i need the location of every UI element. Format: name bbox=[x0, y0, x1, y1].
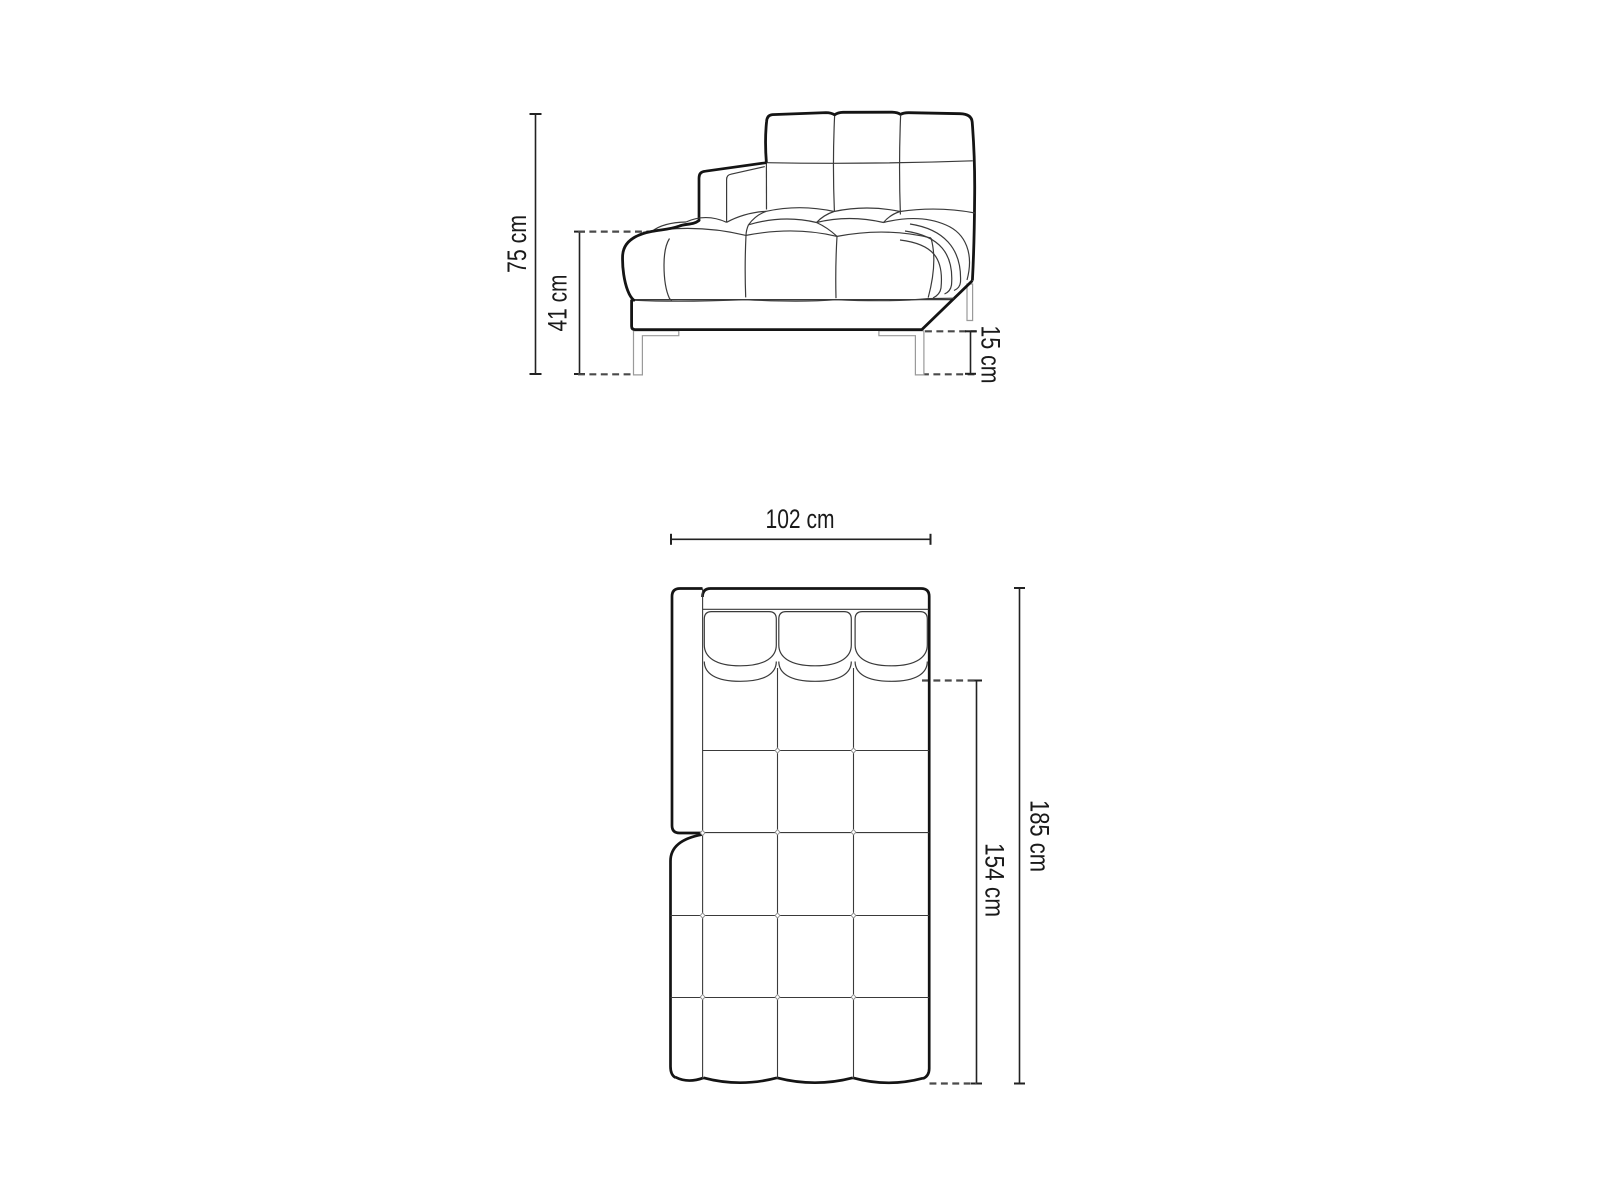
svg-text:102 cm: 102 cm bbox=[766, 504, 835, 534]
svg-text:15 cm: 15 cm bbox=[976, 326, 1006, 384]
svg-text:41 cm: 41 cm bbox=[543, 275, 573, 332]
svg-text:154 cm: 154 cm bbox=[980, 843, 1010, 917]
svg-text:75 cm: 75 cm bbox=[502, 215, 532, 273]
svg-text:185 cm: 185 cm bbox=[1025, 800, 1055, 872]
